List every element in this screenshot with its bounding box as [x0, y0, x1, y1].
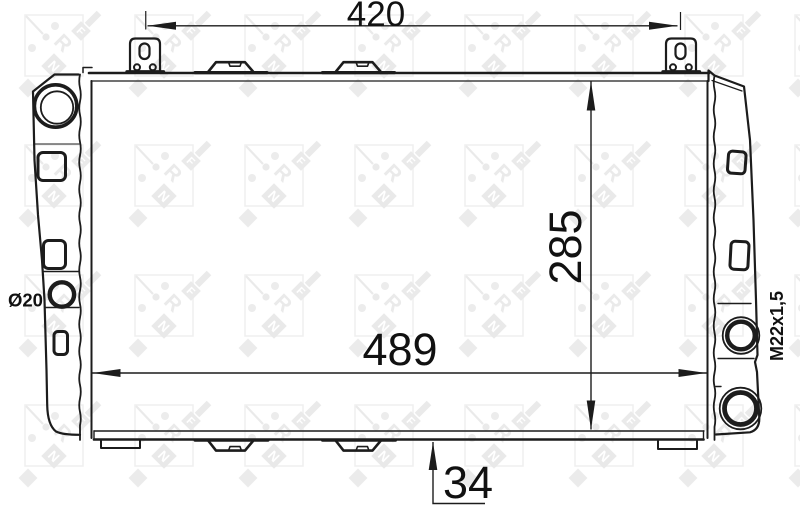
svg-text:489: 489	[362, 324, 437, 375]
svg-text:34: 34	[443, 457, 493, 508]
svg-text:Ø20: Ø20	[8, 290, 43, 311]
svg-text:420: 420	[347, 0, 405, 34]
svg-text:M22x1,5: M22x1,5	[767, 291, 787, 361]
svg-text:285: 285	[540, 209, 591, 284]
